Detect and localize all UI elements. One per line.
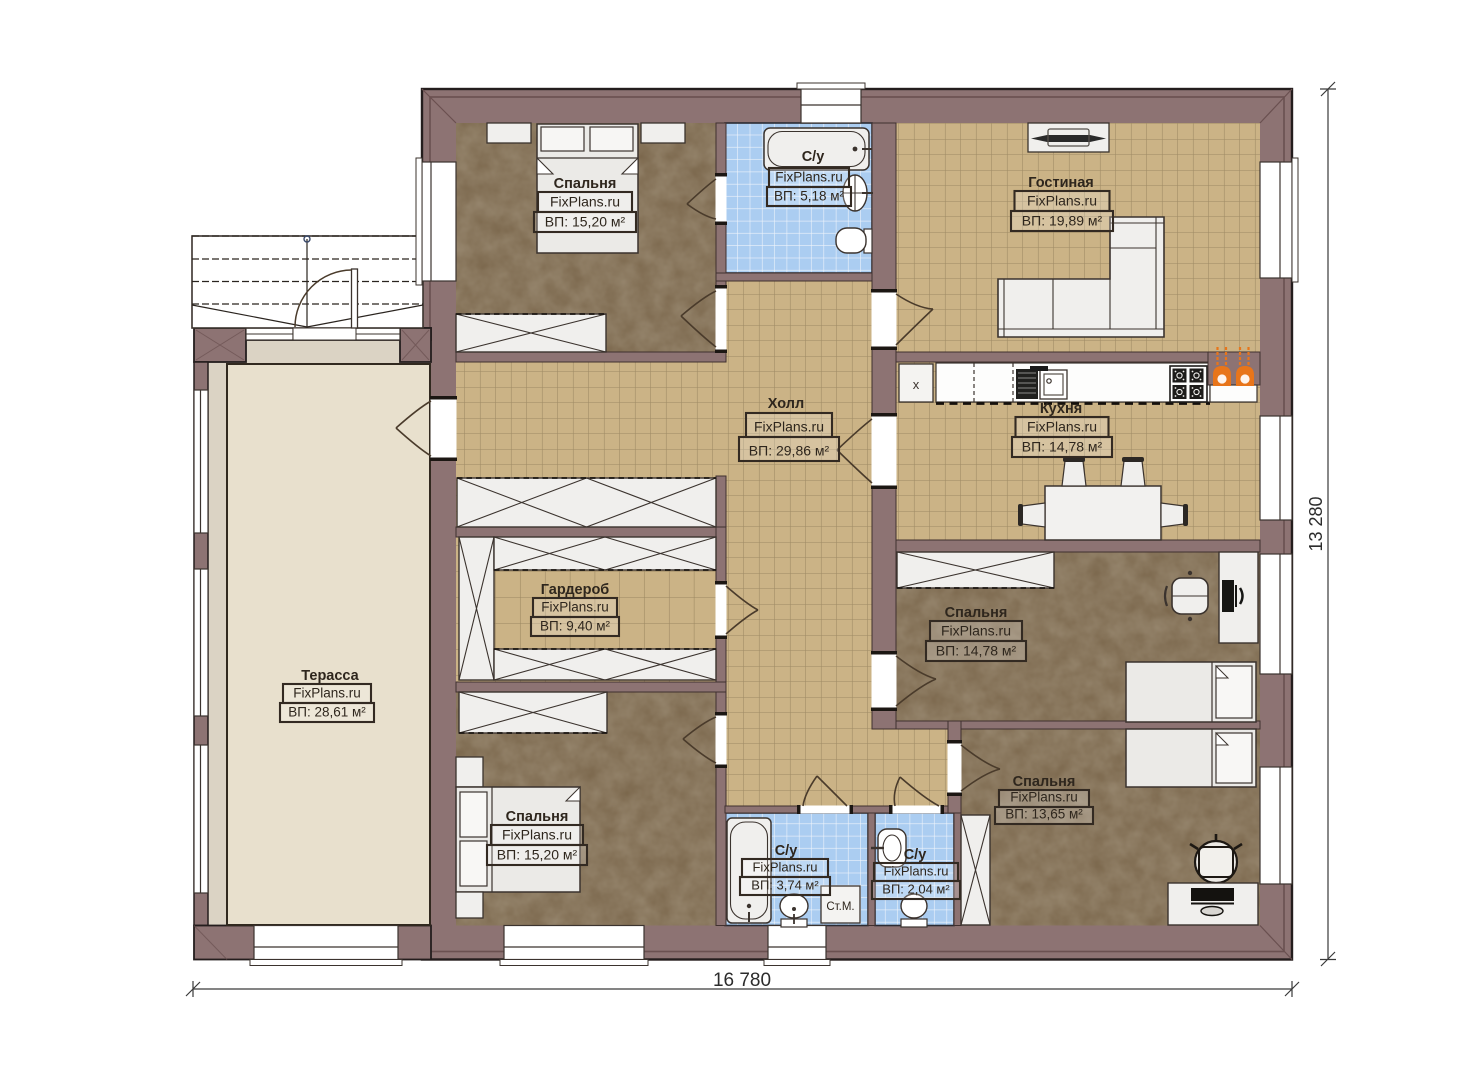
svg-text:ВП: 15,20 м²: ВП: 15,20 м² [545,214,626,230]
svg-text:FixPlans.ru: FixPlans.ru [541,600,609,615]
svg-text:ВП: 13,65 м²: ВП: 13,65 м² [1005,807,1083,822]
svg-text:FixPlans.ru: FixPlans.ru [502,827,572,843]
svg-text:Гардероб: Гардероб [541,582,610,598]
svg-text:FixPlans.ru: FixPlans.ru [1027,419,1097,435]
svg-text:FixPlans.ru: FixPlans.ru [941,623,1011,639]
svg-text:С/у: С/у [775,843,798,859]
svg-text:x: x [913,377,920,392]
svg-text:Ст.М.: Ст.М. [826,901,854,913]
svg-text:FixPlans.ru: FixPlans.ru [754,419,824,435]
svg-text:Спальня: Спальня [506,809,569,825]
svg-text:ВП: 29,86 м²: ВП: 29,86 м² [749,443,830,459]
svg-text:16 780: 16 780 [713,970,771,991]
svg-text:С/у: С/у [802,149,825,165]
svg-text:Спальня: Спальня [1013,774,1076,790]
svg-text:ВП: 19,89 м²: ВП: 19,89 м² [1022,213,1103,229]
svg-text:FixPlans.ru: FixPlans.ru [550,194,620,210]
svg-text:Кухня: Кухня [1040,401,1082,417]
svg-text:ВП: 5,18 м²: ВП: 5,18 м² [774,189,845,204]
svg-text:ВП: 15,20 м²: ВП: 15,20 м² [497,847,578,863]
svg-text:ВП: 14,78 м²: ВП: 14,78 м² [936,643,1017,659]
svg-text:13 280: 13 280 [1306,496,1326,551]
svg-text:ВП: 2,04 м²: ВП: 2,04 м² [882,882,950,897]
svg-text:FixPlans.ru: FixPlans.ru [775,170,843,185]
svg-text:FixPlans.ru: FixPlans.ru [752,860,817,875]
svg-text:ВП: 14,78 м²: ВП: 14,78 м² [1022,439,1103,455]
svg-text:FixPlans.ru: FixPlans.ru [293,686,361,701]
svg-text:Гостиная: Гостиная [1028,175,1094,191]
svg-text:Спальня: Спальня [554,176,617,192]
svg-text:FixPlans.ru: FixPlans.ru [1027,193,1097,209]
svg-text:ВП: 28,61 м²: ВП: 28,61 м² [288,705,366,720]
svg-text:FixPlans.ru: FixPlans.ru [1010,790,1078,805]
svg-text:FixPlans.ru: FixPlans.ru [883,864,948,879]
svg-text:ВП: 3,74 м²: ВП: 3,74 м² [751,878,819,893]
svg-text:Спальня: Спальня [945,605,1008,621]
svg-text:Терасса: Терасса [301,668,359,684]
svg-text:С/у: С/у [904,847,927,863]
svg-text:ВП: 9,40 м²: ВП: 9,40 м² [540,619,611,634]
svg-text:Холл: Холл [768,396,804,412]
